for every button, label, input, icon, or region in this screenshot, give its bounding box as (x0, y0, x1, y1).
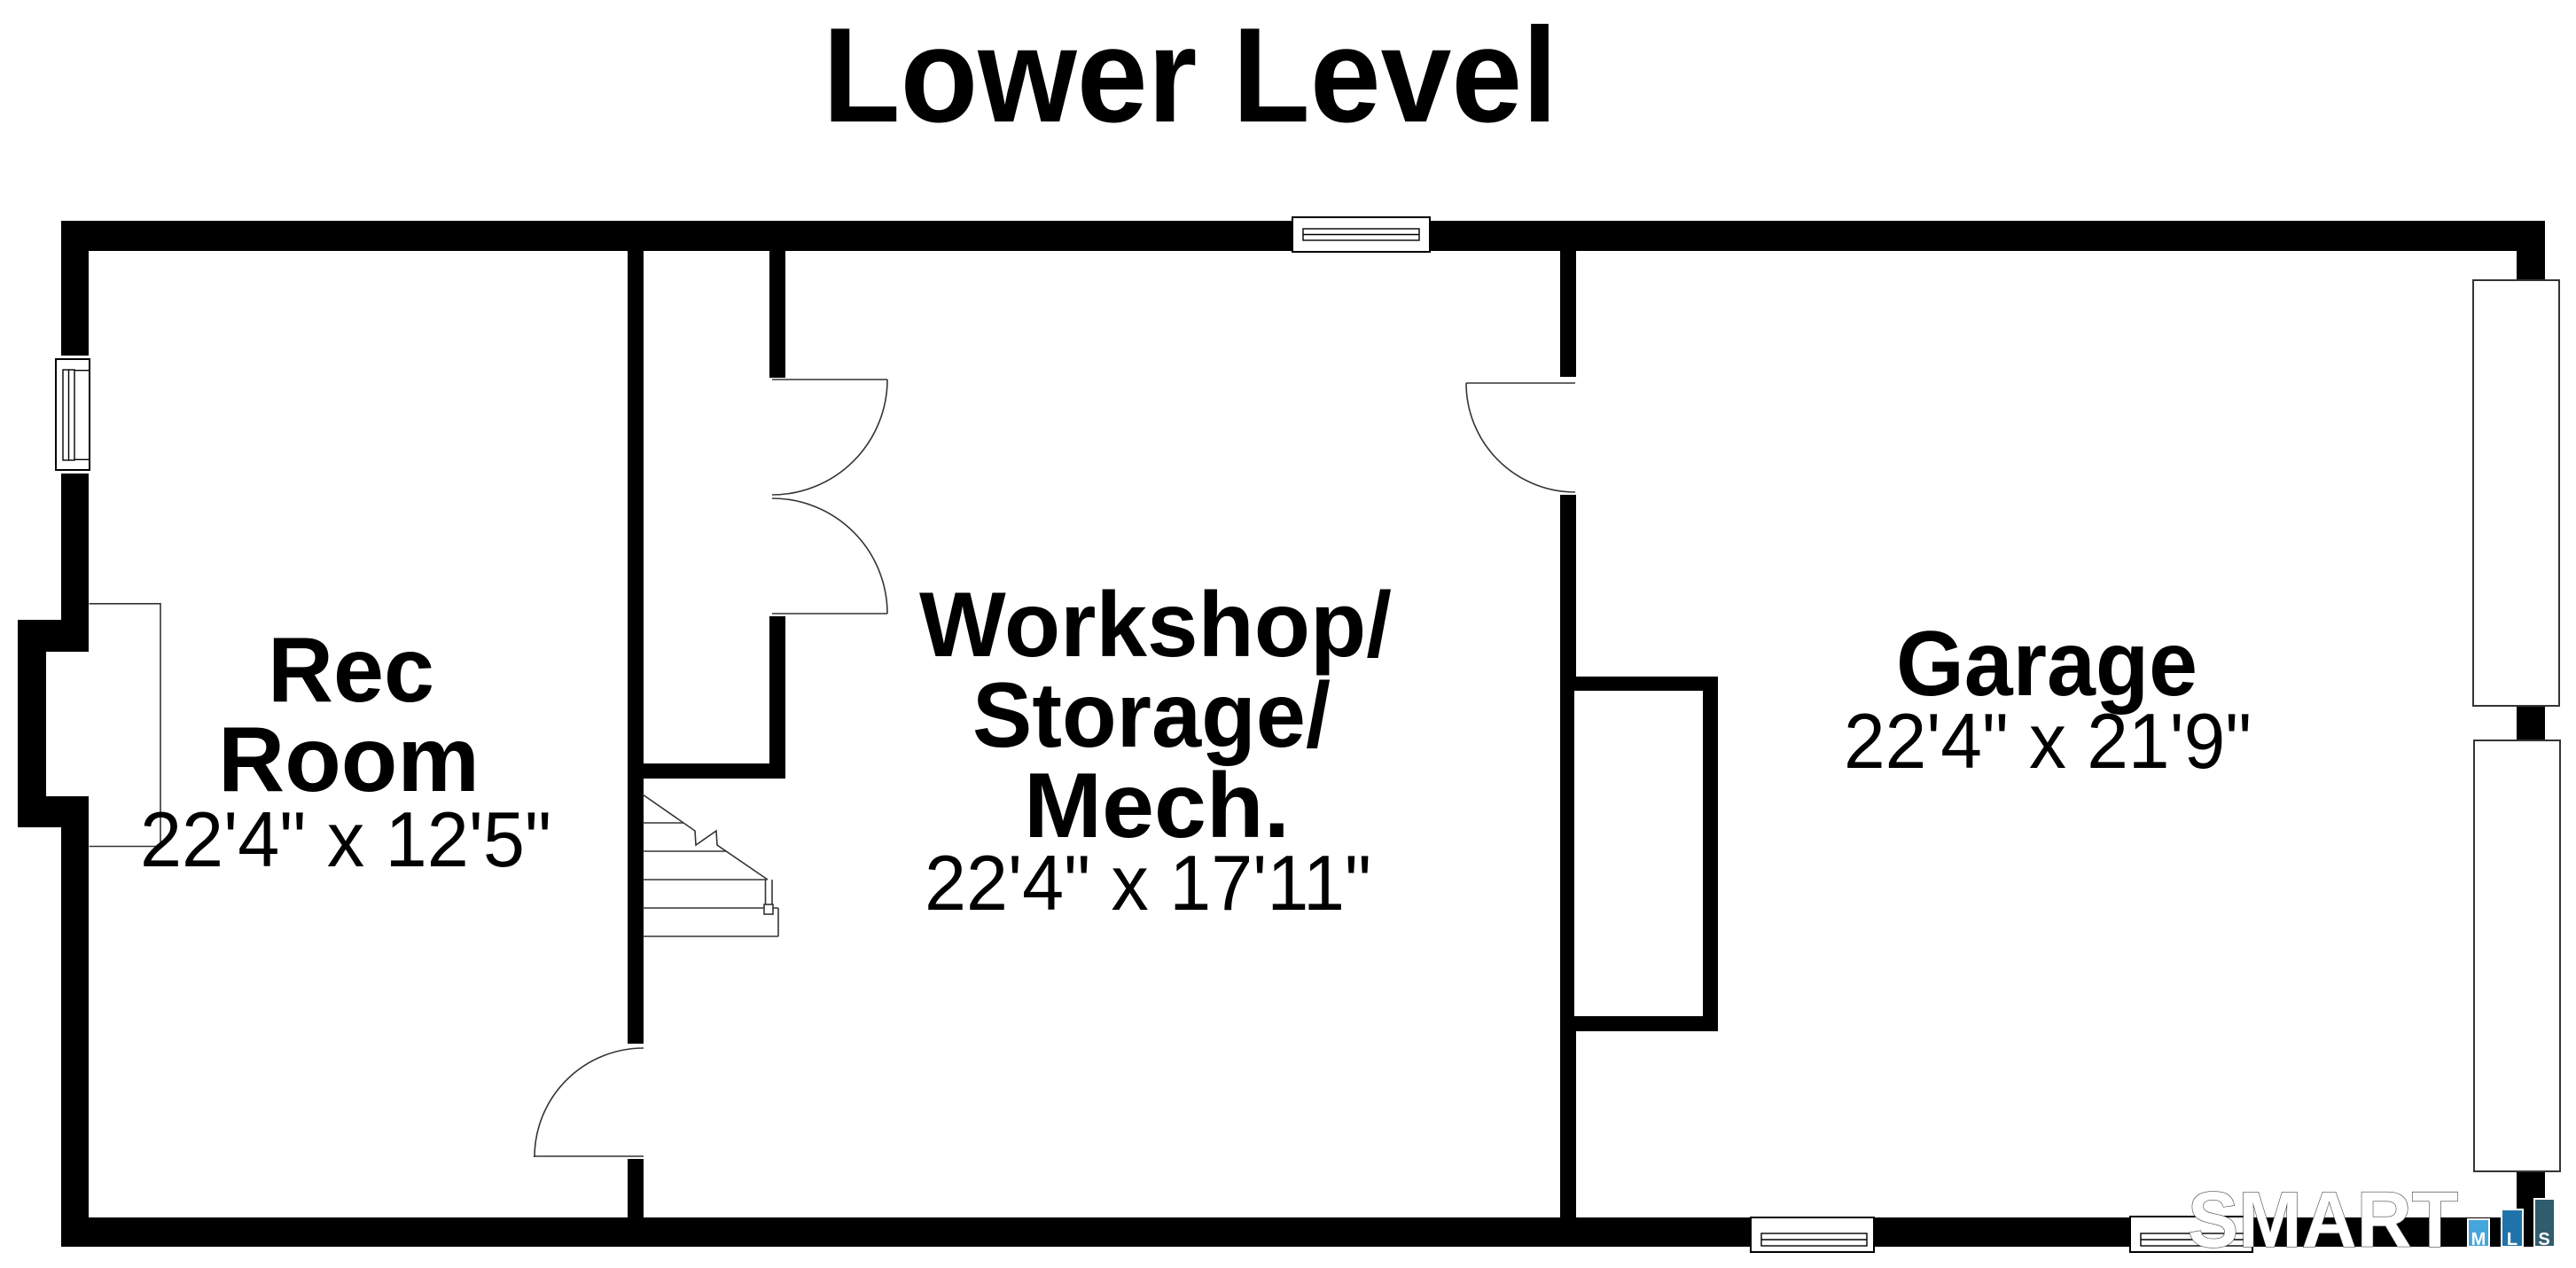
svg-text:L: L (2507, 1230, 2517, 1249)
svg-text:22'4" x 21'9": 22'4" x 21'9" (1844, 697, 2252, 785)
svg-text:Storage/: Storage/ (972, 664, 1331, 767)
svg-text:Workshop/: Workshop/ (919, 574, 1392, 677)
svg-text:22'4" x 17'11": 22'4" x 17'11" (925, 839, 1371, 927)
svg-text:Rec: Rec (268, 619, 434, 722)
svg-text:SMART: SMART (2188, 1175, 2458, 1264)
svg-text:Lower Level: Lower Level (823, 0, 1557, 151)
svg-text:S: S (2538, 1230, 2549, 1249)
svg-text:22'4" x 12'5": 22'4" x 12'5" (140, 795, 551, 883)
svg-text:M: M (2471, 1230, 2486, 1249)
